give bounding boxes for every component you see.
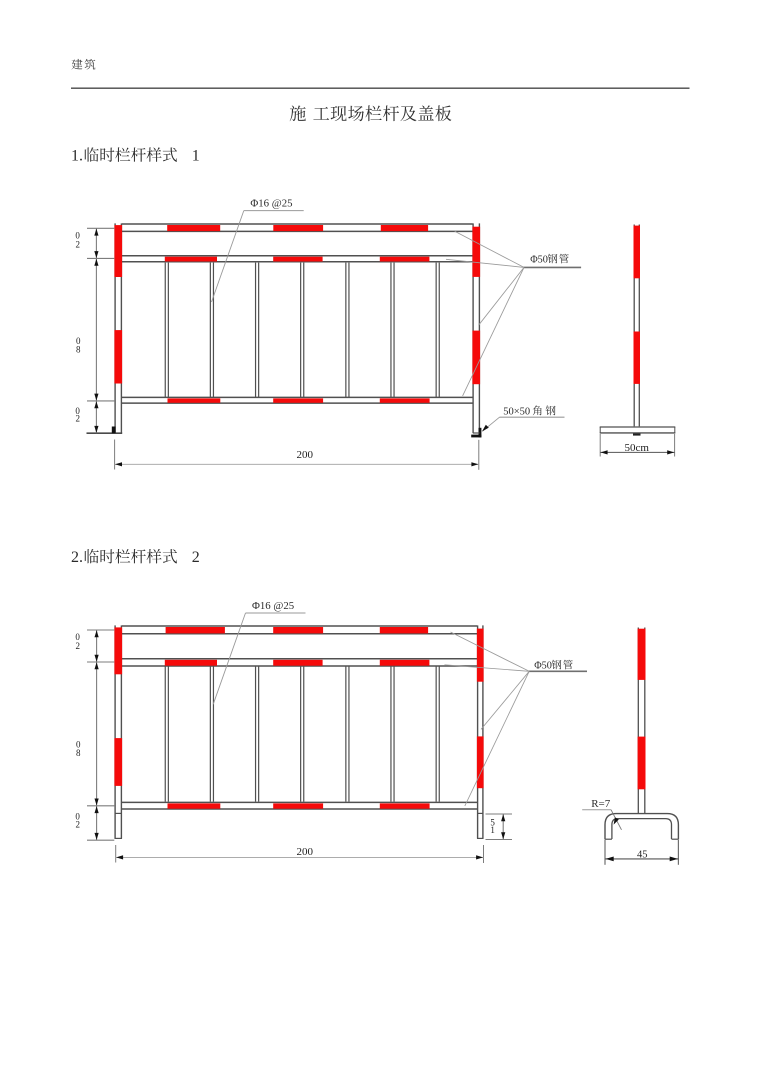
- svg-text:Φ16 @25: Φ16 @25: [252, 600, 294, 612]
- svg-text:2: 2: [75, 641, 80, 651]
- svg-text:200: 200: [297, 846, 314, 858]
- svg-text:2: 2: [75, 414, 80, 424]
- svg-text:1.: 1.: [71, 148, 83, 165]
- svg-text:2: 2: [75, 819, 80, 829]
- svg-text:1: 1: [490, 825, 495, 835]
- svg-text:Φ50: Φ50: [534, 661, 552, 672]
- svg-text:1: 1: [192, 148, 200, 165]
- svg-text:2.: 2.: [71, 549, 83, 566]
- svg-text:8: 8: [76, 748, 81, 758]
- svg-text:R=7: R=7: [591, 798, 611, 810]
- svg-text:Φ16 @25: Φ16 @25: [250, 197, 292, 209]
- svg-text:2: 2: [75, 239, 80, 249]
- svg-text:50×50: 50×50: [503, 406, 530, 417]
- svg-text:Φ50: Φ50: [530, 255, 548, 266]
- svg-text:2: 2: [192, 549, 200, 566]
- svg-text:8: 8: [76, 344, 81, 354]
- svg-text:200: 200: [297, 449, 314, 461]
